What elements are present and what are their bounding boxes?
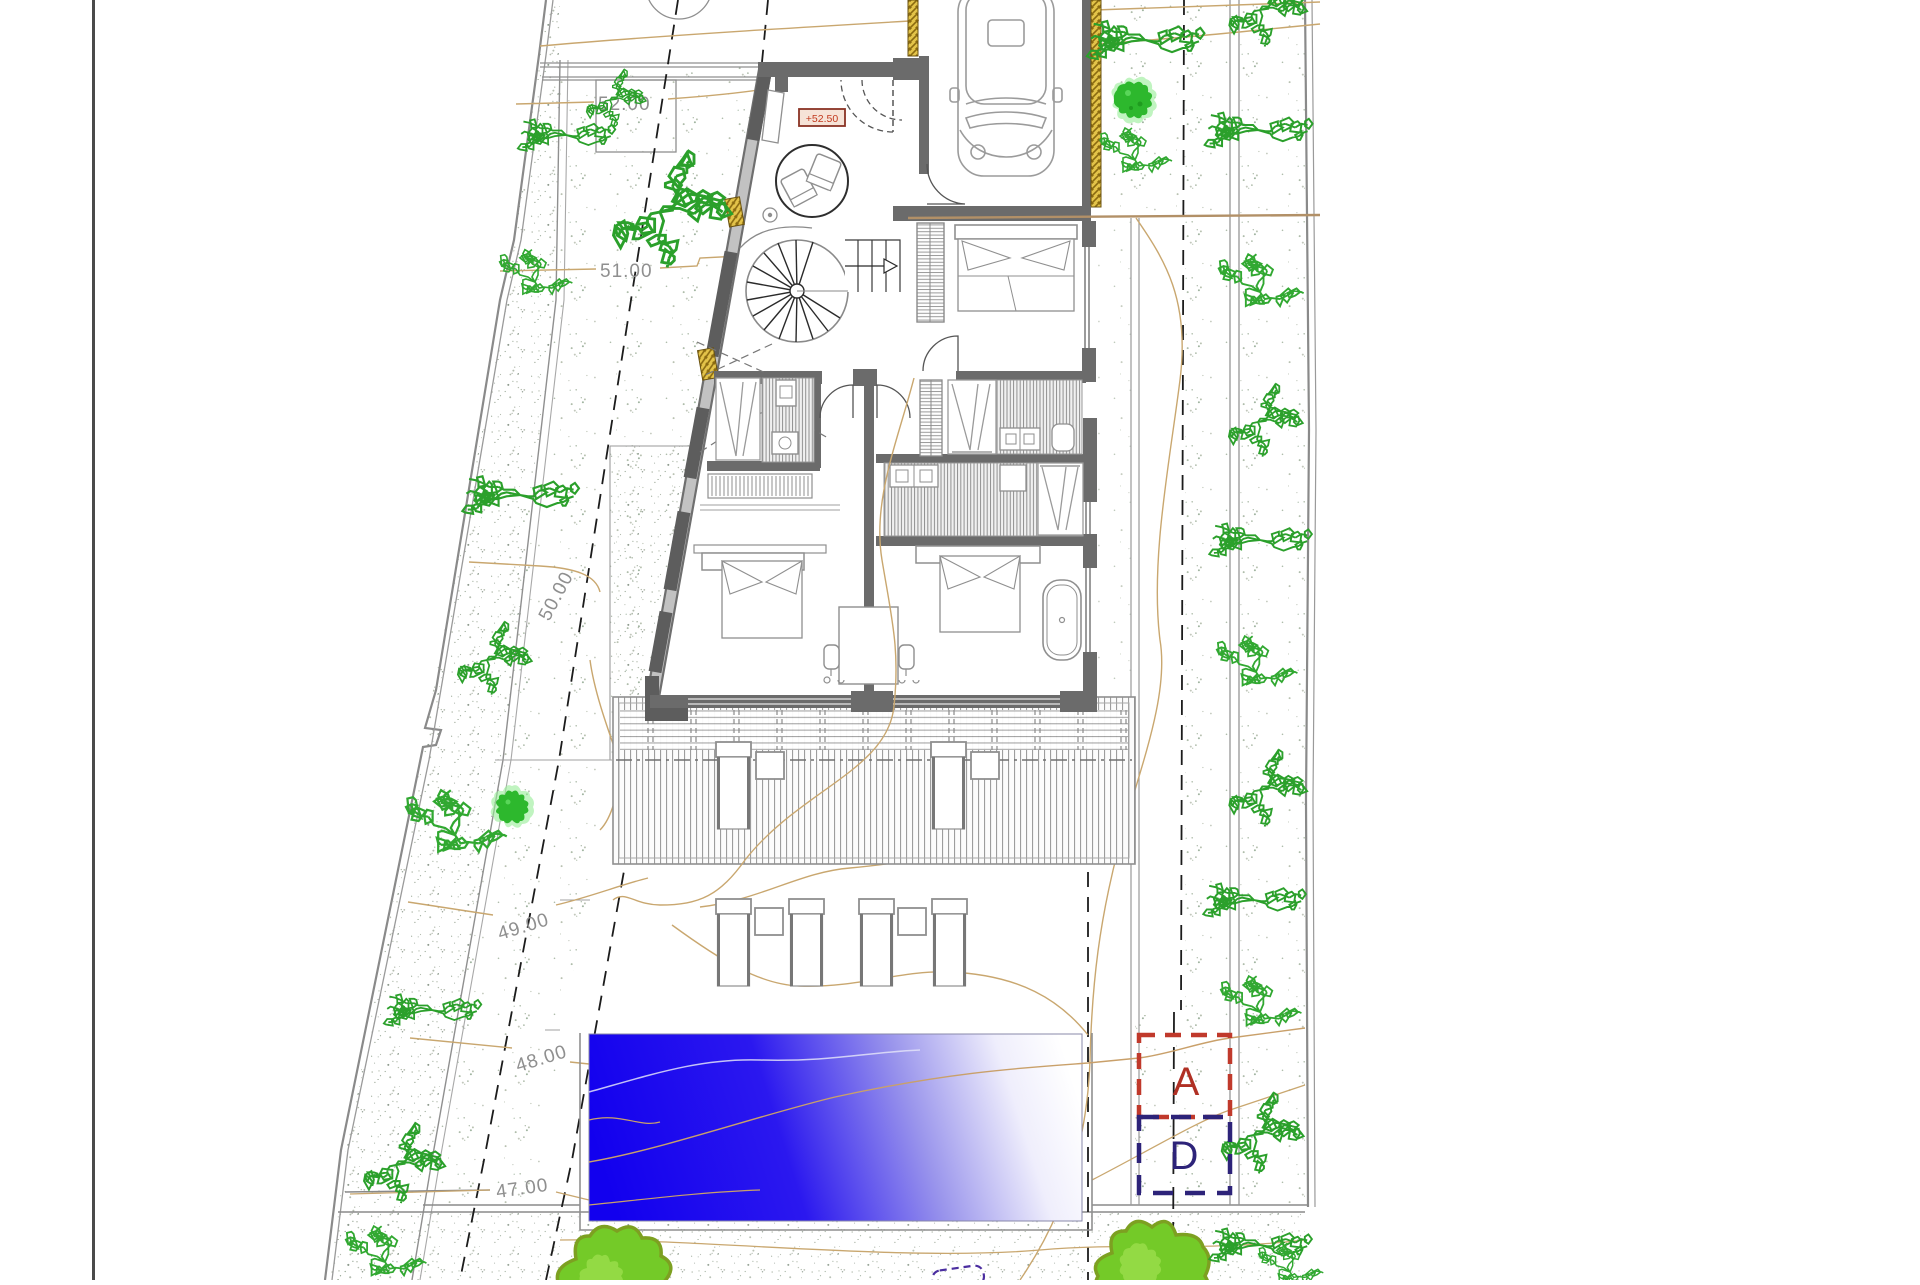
svg-text:D: D: [1170, 1134, 1199, 1178]
svg-text:51.00: 51.00: [600, 261, 653, 282]
svg-text:+52.50: +52.50: [806, 113, 839, 125]
svg-text:A: A: [1173, 1060, 1200, 1104]
